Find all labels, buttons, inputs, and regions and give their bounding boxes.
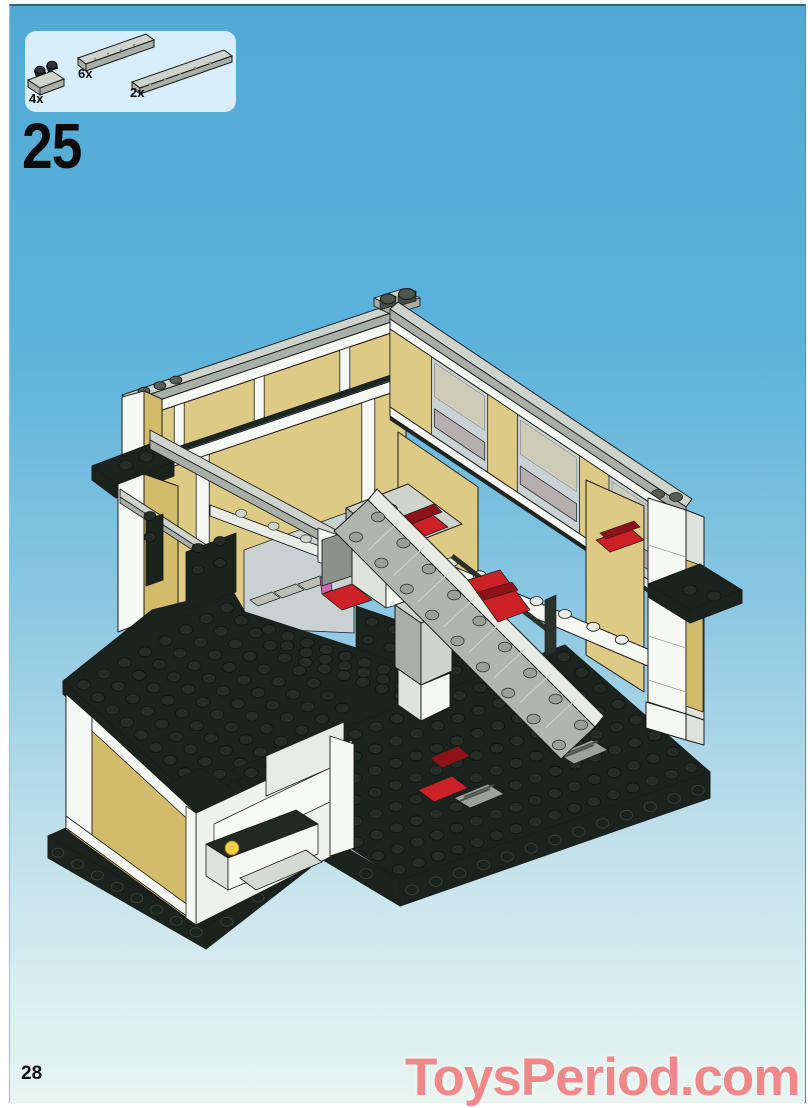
svg-text:4x: 4x: [29, 91, 44, 106]
svg-text:6x: 6x: [78, 66, 93, 81]
svg-text:2x: 2x: [130, 85, 145, 100]
